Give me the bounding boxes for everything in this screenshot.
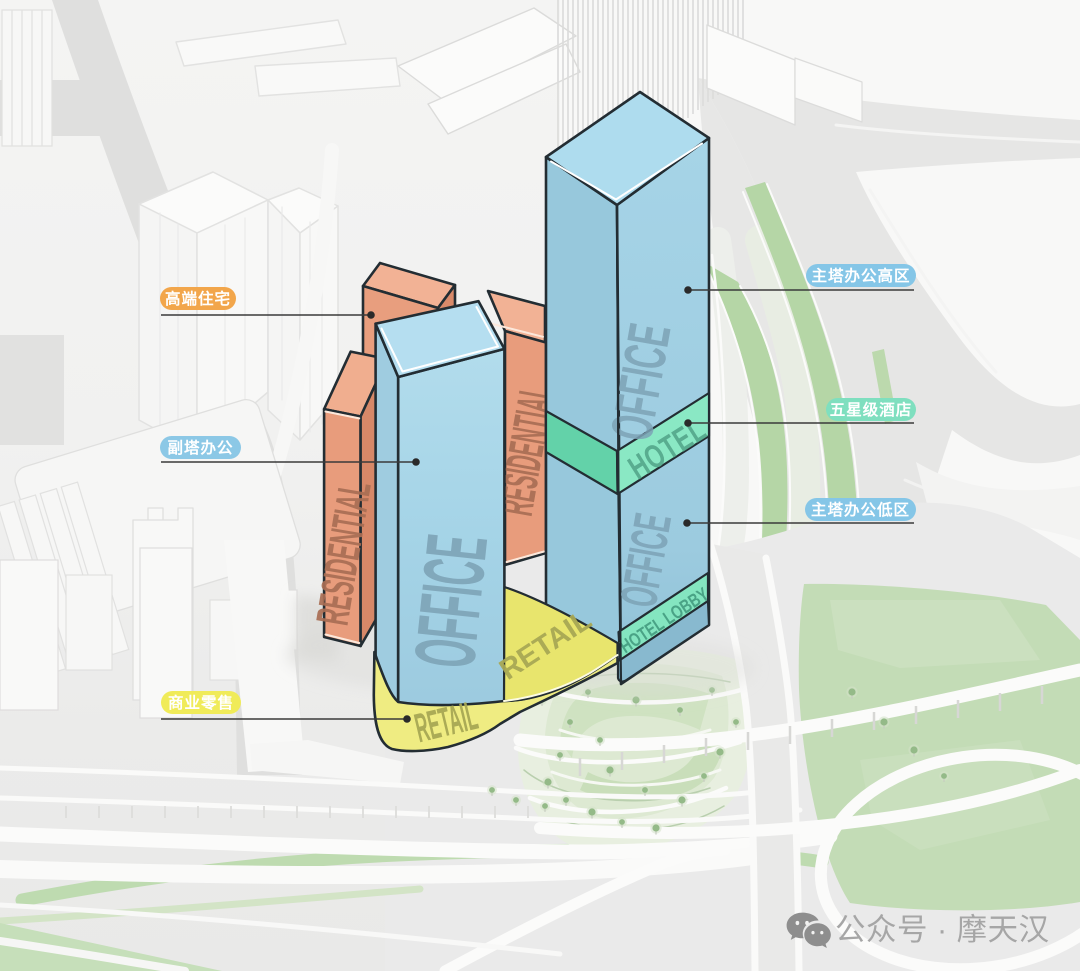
svg-text:公众号 · 摩天汉: 公众号 · 摩天汉 [835, 913, 1050, 947]
svg-text:主塔办公低区: 主塔办公低区 [811, 500, 910, 519]
svg-text:副塔办公: 副塔办公 [167, 438, 233, 457]
svg-text:主塔办公高区: 主塔办公高区 [811, 266, 910, 285]
svg-text:高端住宅: 高端住宅 [165, 289, 231, 308]
svg-text:商业零售: 商业零售 [168, 693, 234, 712]
svg-text:OFFICE: OFFICE [396, 530, 506, 672]
svg-text:五星级酒店: 五星级酒店 [830, 400, 913, 419]
